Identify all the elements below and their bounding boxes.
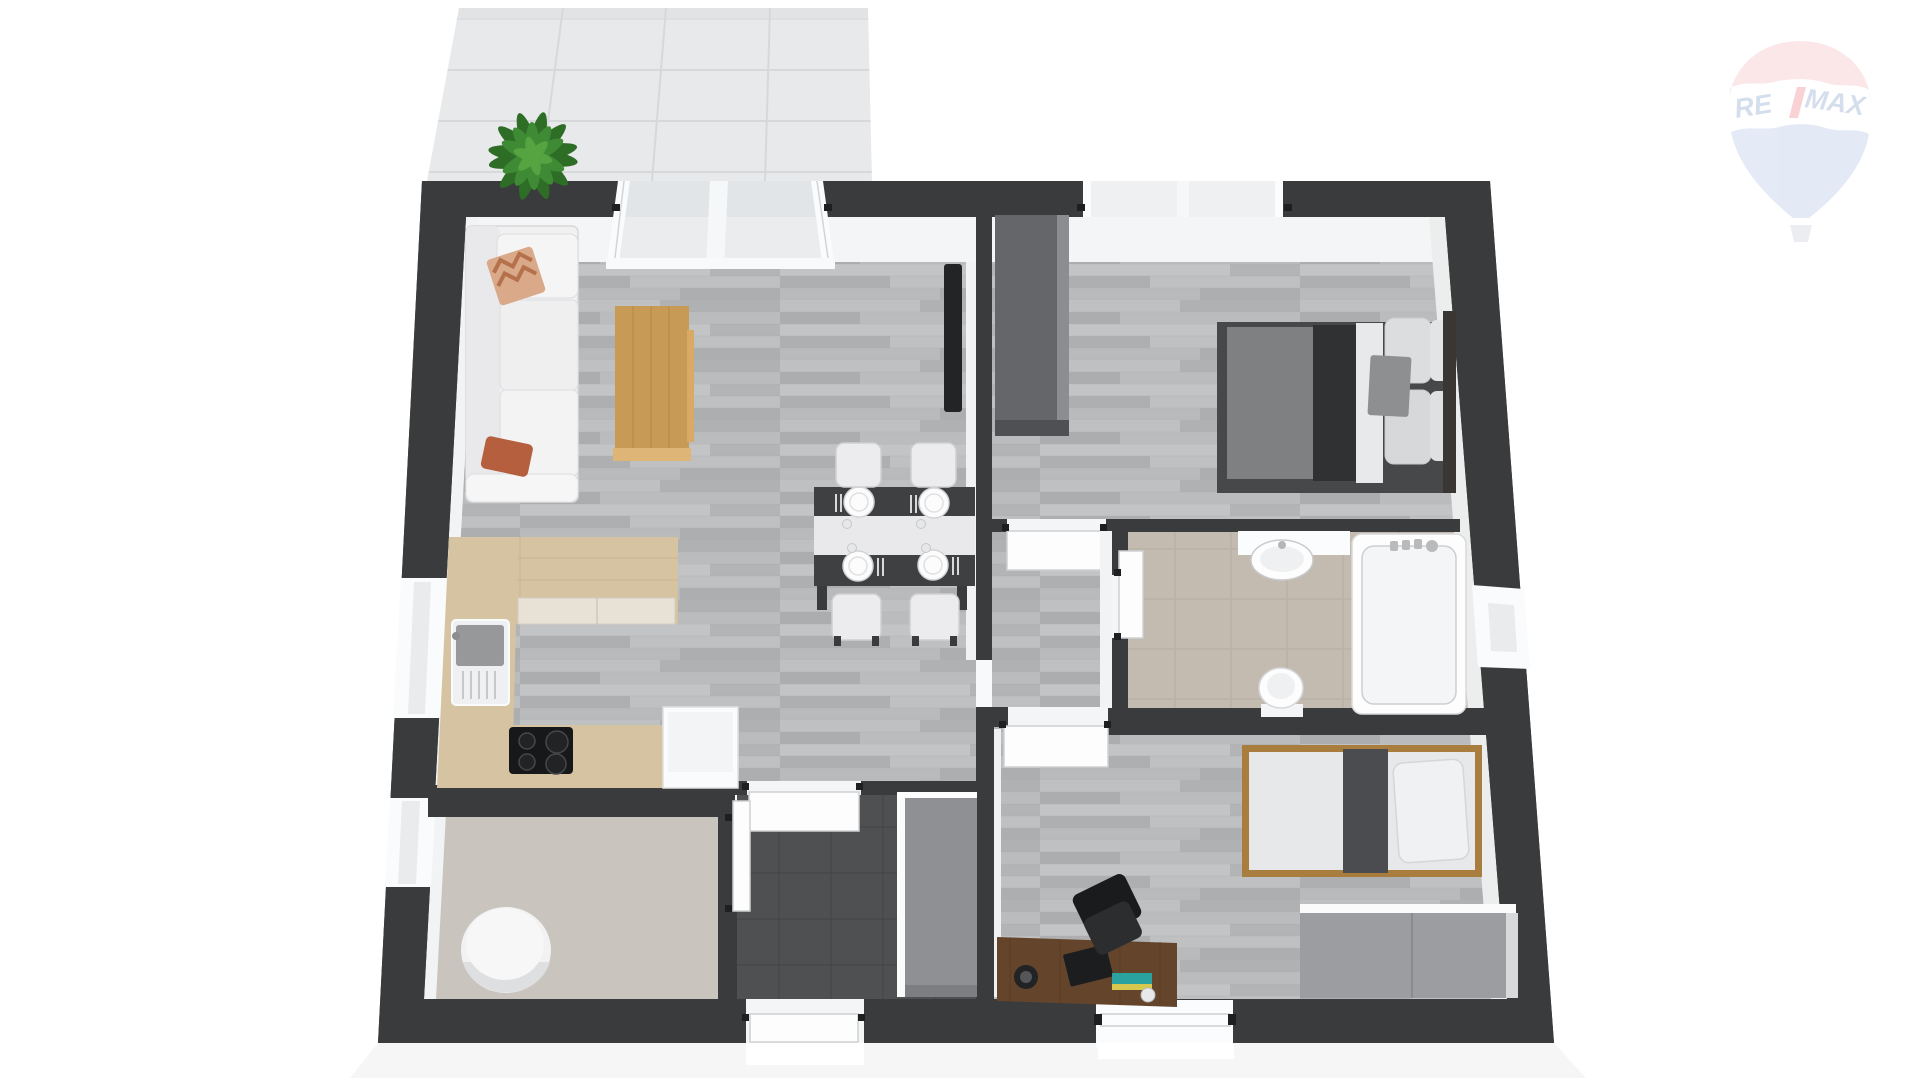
svg-text:RE: RE [1732, 88, 1775, 124]
